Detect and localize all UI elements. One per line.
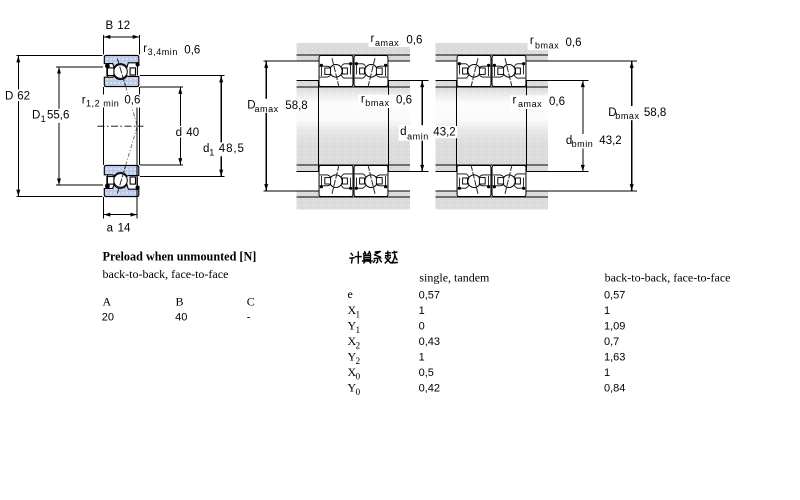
svg-text:bmax: bmax [365, 98, 389, 108]
svg-text:0,6: 0,6 [124, 94, 140, 106]
svg-text:r: r [513, 95, 517, 107]
svg-text:0,42: 0,42 [419, 383, 440, 395]
svg-text:r: r [361, 93, 365, 105]
svg-text:bmax: bmax [615, 111, 639, 121]
svg-text:d: d [176, 127, 182, 139]
svg-text:14: 14 [118, 222, 131, 234]
svg-text:back-to-back, face-to-face: back-to-back, face-to-face [605, 271, 731, 285]
svg-text:2: 2 [356, 357, 361, 367]
svg-text:62: 62 [17, 90, 30, 102]
svg-text:1: 1 [356, 311, 361, 321]
svg-text:r: r [371, 33, 375, 45]
svg-text:1: 1 [209, 147, 215, 157]
svg-text:Preload when unmounted [N]: Preload when unmounted [N] [103, 250, 257, 264]
svg-text:20: 20 [102, 311, 114, 323]
svg-text:d: d [400, 126, 406, 138]
svg-text:0,57: 0,57 [604, 289, 625, 301]
svg-text:0: 0 [356, 373, 361, 383]
svg-text:bmax: bmax [535, 40, 559, 50]
svg-text:1: 1 [41, 114, 47, 124]
svg-text:55,6: 55,6 [47, 110, 69, 122]
svg-text:0,5: 0,5 [419, 367, 434, 379]
svg-text:0,6: 0,6 [566, 37, 582, 49]
svg-text:amax: amax [375, 38, 399, 48]
svg-text:1: 1 [604, 367, 610, 379]
svg-text:40: 40 [186, 127, 199, 139]
svg-text:0: 0 [356, 388, 361, 398]
svg-text:C: C [247, 295, 255, 309]
svg-text:single, tandem: single, tandem [419, 271, 490, 285]
svg-text:1: 1 [604, 305, 610, 317]
svg-text:B: B [176, 295, 184, 309]
svg-text:58,8: 58,8 [285, 100, 307, 112]
svg-text:D: D [32, 110, 40, 122]
svg-text:40: 40 [175, 311, 187, 323]
svg-text:back-to-back, face-to-face: back-to-back, face-to-face [103, 267, 229, 281]
svg-text:2: 2 [356, 342, 361, 352]
svg-text:A: A [103, 295, 112, 309]
svg-text:1,2 min: 1,2 min [86, 99, 119, 109]
svg-text:bmin: bmin [572, 139, 594, 149]
svg-text:0,6: 0,6 [184, 45, 200, 57]
svg-text:43,2: 43,2 [599, 135, 621, 147]
svg-text:amax: amax [518, 99, 542, 109]
svg-text:0,43: 0,43 [419, 336, 440, 348]
svg-text:0,6: 0,6 [406, 35, 422, 47]
svg-text:12: 12 [117, 20, 130, 32]
svg-text:1: 1 [356, 326, 361, 336]
svg-text:43,2: 43,2 [433, 126, 455, 138]
svg-text:0,6: 0,6 [396, 95, 412, 107]
svg-text:amax: amax [255, 104, 279, 114]
svg-text:0,57: 0,57 [419, 289, 440, 301]
svg-text:0,7: 0,7 [604, 336, 619, 348]
svg-text:0,84: 0,84 [604, 383, 625, 395]
svg-text:-: - [247, 311, 251, 323]
svg-text:B: B [106, 20, 114, 32]
svg-text:1: 1 [419, 352, 425, 364]
svg-text:r: r [530, 35, 534, 47]
svg-text:1,09: 1,09 [604, 321, 625, 333]
svg-text:1: 1 [419, 305, 425, 317]
svg-text:e: e [348, 287, 353, 301]
svg-text:D: D [5, 90, 13, 102]
svg-text:amin: amin [407, 131, 429, 141]
svg-text:0: 0 [419, 321, 425, 333]
svg-text:0,6: 0,6 [549, 96, 565, 108]
svg-text:58,8: 58,8 [644, 107, 666, 119]
svg-text:a: a [107, 222, 114, 234]
svg-text:48,5: 48,5 [219, 143, 245, 155]
svg-text:3,4min: 3,4min [148, 47, 178, 57]
svg-text:1,63: 1,63 [604, 352, 625, 364]
